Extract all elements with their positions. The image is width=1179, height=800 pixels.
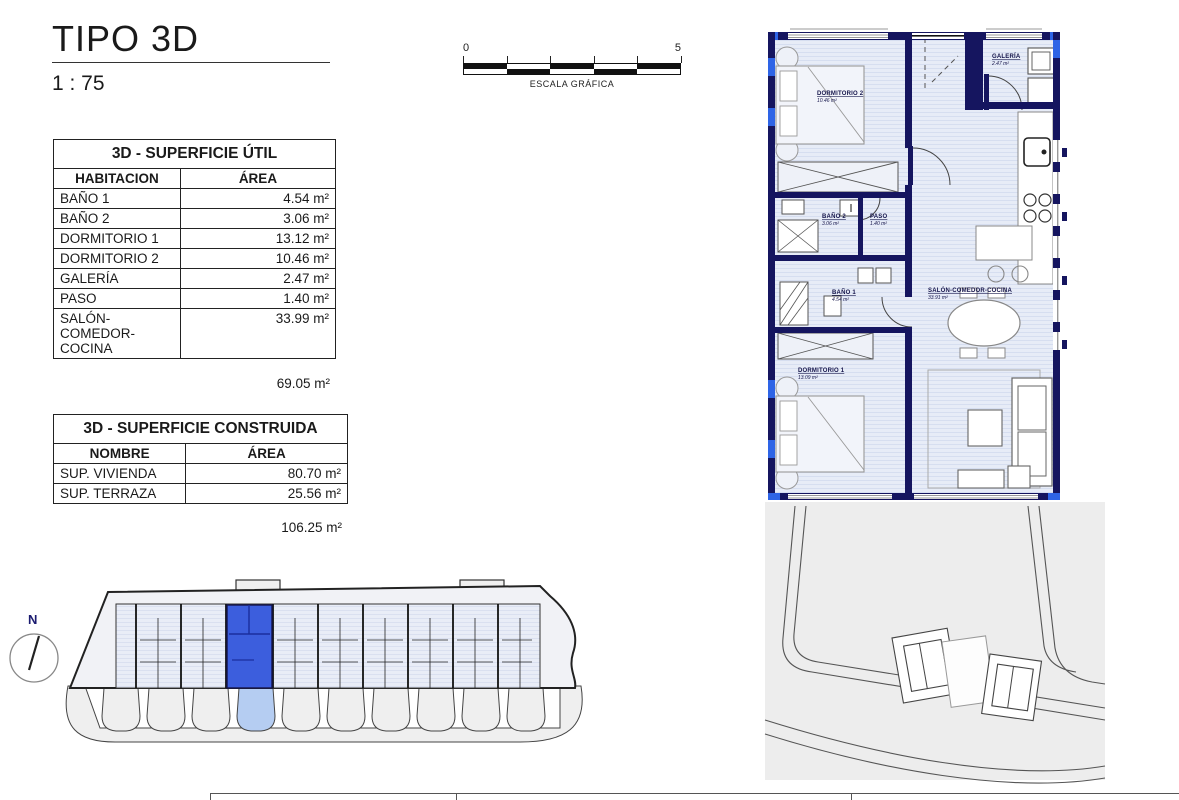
unit-strip (116, 604, 540, 688)
table-row: DORMITORIO 210.46 m² (54, 249, 336, 269)
construida-total: 106.25 m² (53, 520, 348, 535)
table-util-title: 3D - SUPERFICIE ÚTIL (54, 140, 336, 169)
highlighted-unit (227, 605, 272, 688)
table-superficie-util: 3D - SUPERFICIE ÚTIL HABITACION ÁREA BAÑ… (53, 139, 336, 359)
area-bano2: 3.06 m² (822, 221, 839, 227)
label-dormitorio1: DORMITORIO 1 (798, 368, 845, 374)
label-salon: SALÓN-COMEDOR-COCINA (928, 286, 1012, 294)
label-galeria: GALERÍA (992, 52, 1021, 60)
scale-bar-segments (463, 63, 681, 75)
col-header-area2: ÁREA (186, 444, 348, 464)
terrace-cells (102, 688, 545, 731)
table-row: SUP. TERRAZA25.56 m² (54, 484, 348, 504)
label-bano1: BAÑO 1 (832, 289, 856, 296)
col-header-habitacion: HABITACION (54, 169, 181, 189)
floor-plan: DORMITORIO 2 10.46 m² GALERÍA 2.47 m² BA… (760, 20, 1179, 790)
north-label: N (28, 612, 37, 627)
area-bano1: 4.54 m² (832, 297, 849, 303)
table-superficie-construida: 3D - SUPERFICIE CONSTRUIDA NOMBRE ÁREA S… (53, 414, 348, 504)
table-row: BAÑO 23.06 m² (54, 209, 336, 229)
site-key-plan (40, 578, 615, 758)
label-paso: PASO (870, 214, 887, 220)
area-salon: 33.91 m² (928, 295, 948, 301)
cropped-bottom-table (210, 793, 1179, 800)
sun-lounger (982, 654, 1042, 721)
table-row: BAÑO 14.54 m² (54, 189, 336, 209)
area-dormitorio1: 13.09 m² (798, 375, 818, 381)
col-header-area: ÁREA (180, 169, 335, 189)
table-row: GALERÍA2.47 m² (54, 269, 336, 289)
plan-sheet: TIPO 3D 1 : 75 0 5 ESCALA GRÁFICA 3D - S… (0, 0, 1179, 800)
label-bano2: BAÑO 2 (822, 213, 846, 220)
table-row: SUP. VIVIENDA80.70 m² (54, 464, 348, 484)
scale-start-label: 0 (463, 42, 469, 54)
table-row: PASO1.40 m² (54, 289, 336, 309)
terrace-garden (765, 502, 1105, 783)
compass-needle (29, 636, 39, 670)
area-galeria: 2.47 m² (991, 61, 1009, 67)
highlighted-terrace (237, 688, 275, 731)
area-paso: 1.40 m² (870, 221, 887, 227)
scale-ticks (463, 56, 681, 63)
table-row: SALÓN-COMEDOR-COCINA33.99 m² (54, 309, 336, 359)
drawing-scale: 1 : 75 (52, 72, 105, 96)
area-dormitorio2: 10.46 m² (817, 98, 837, 104)
scale-end-label: 5 (675, 42, 681, 54)
site-terraces (66, 686, 582, 742)
graphic-scale-bar: 0 5 ESCALA GRÁFICA (463, 42, 681, 89)
table-construida-title: 3D - SUPERFICIE CONSTRUIDA (54, 415, 348, 444)
page-title: TIPO 3D (52, 18, 199, 60)
table-row: DORMITORIO 113.12 m² (54, 229, 336, 249)
title-underline (52, 62, 330, 63)
scale-bar-caption: ESCALA GRÁFICA (463, 79, 681, 89)
util-total: 69.05 m² (53, 376, 336, 391)
label-dormitorio2: DORMITORIO 2 (817, 91, 864, 97)
col-header-nombre: NOMBRE (54, 444, 186, 464)
